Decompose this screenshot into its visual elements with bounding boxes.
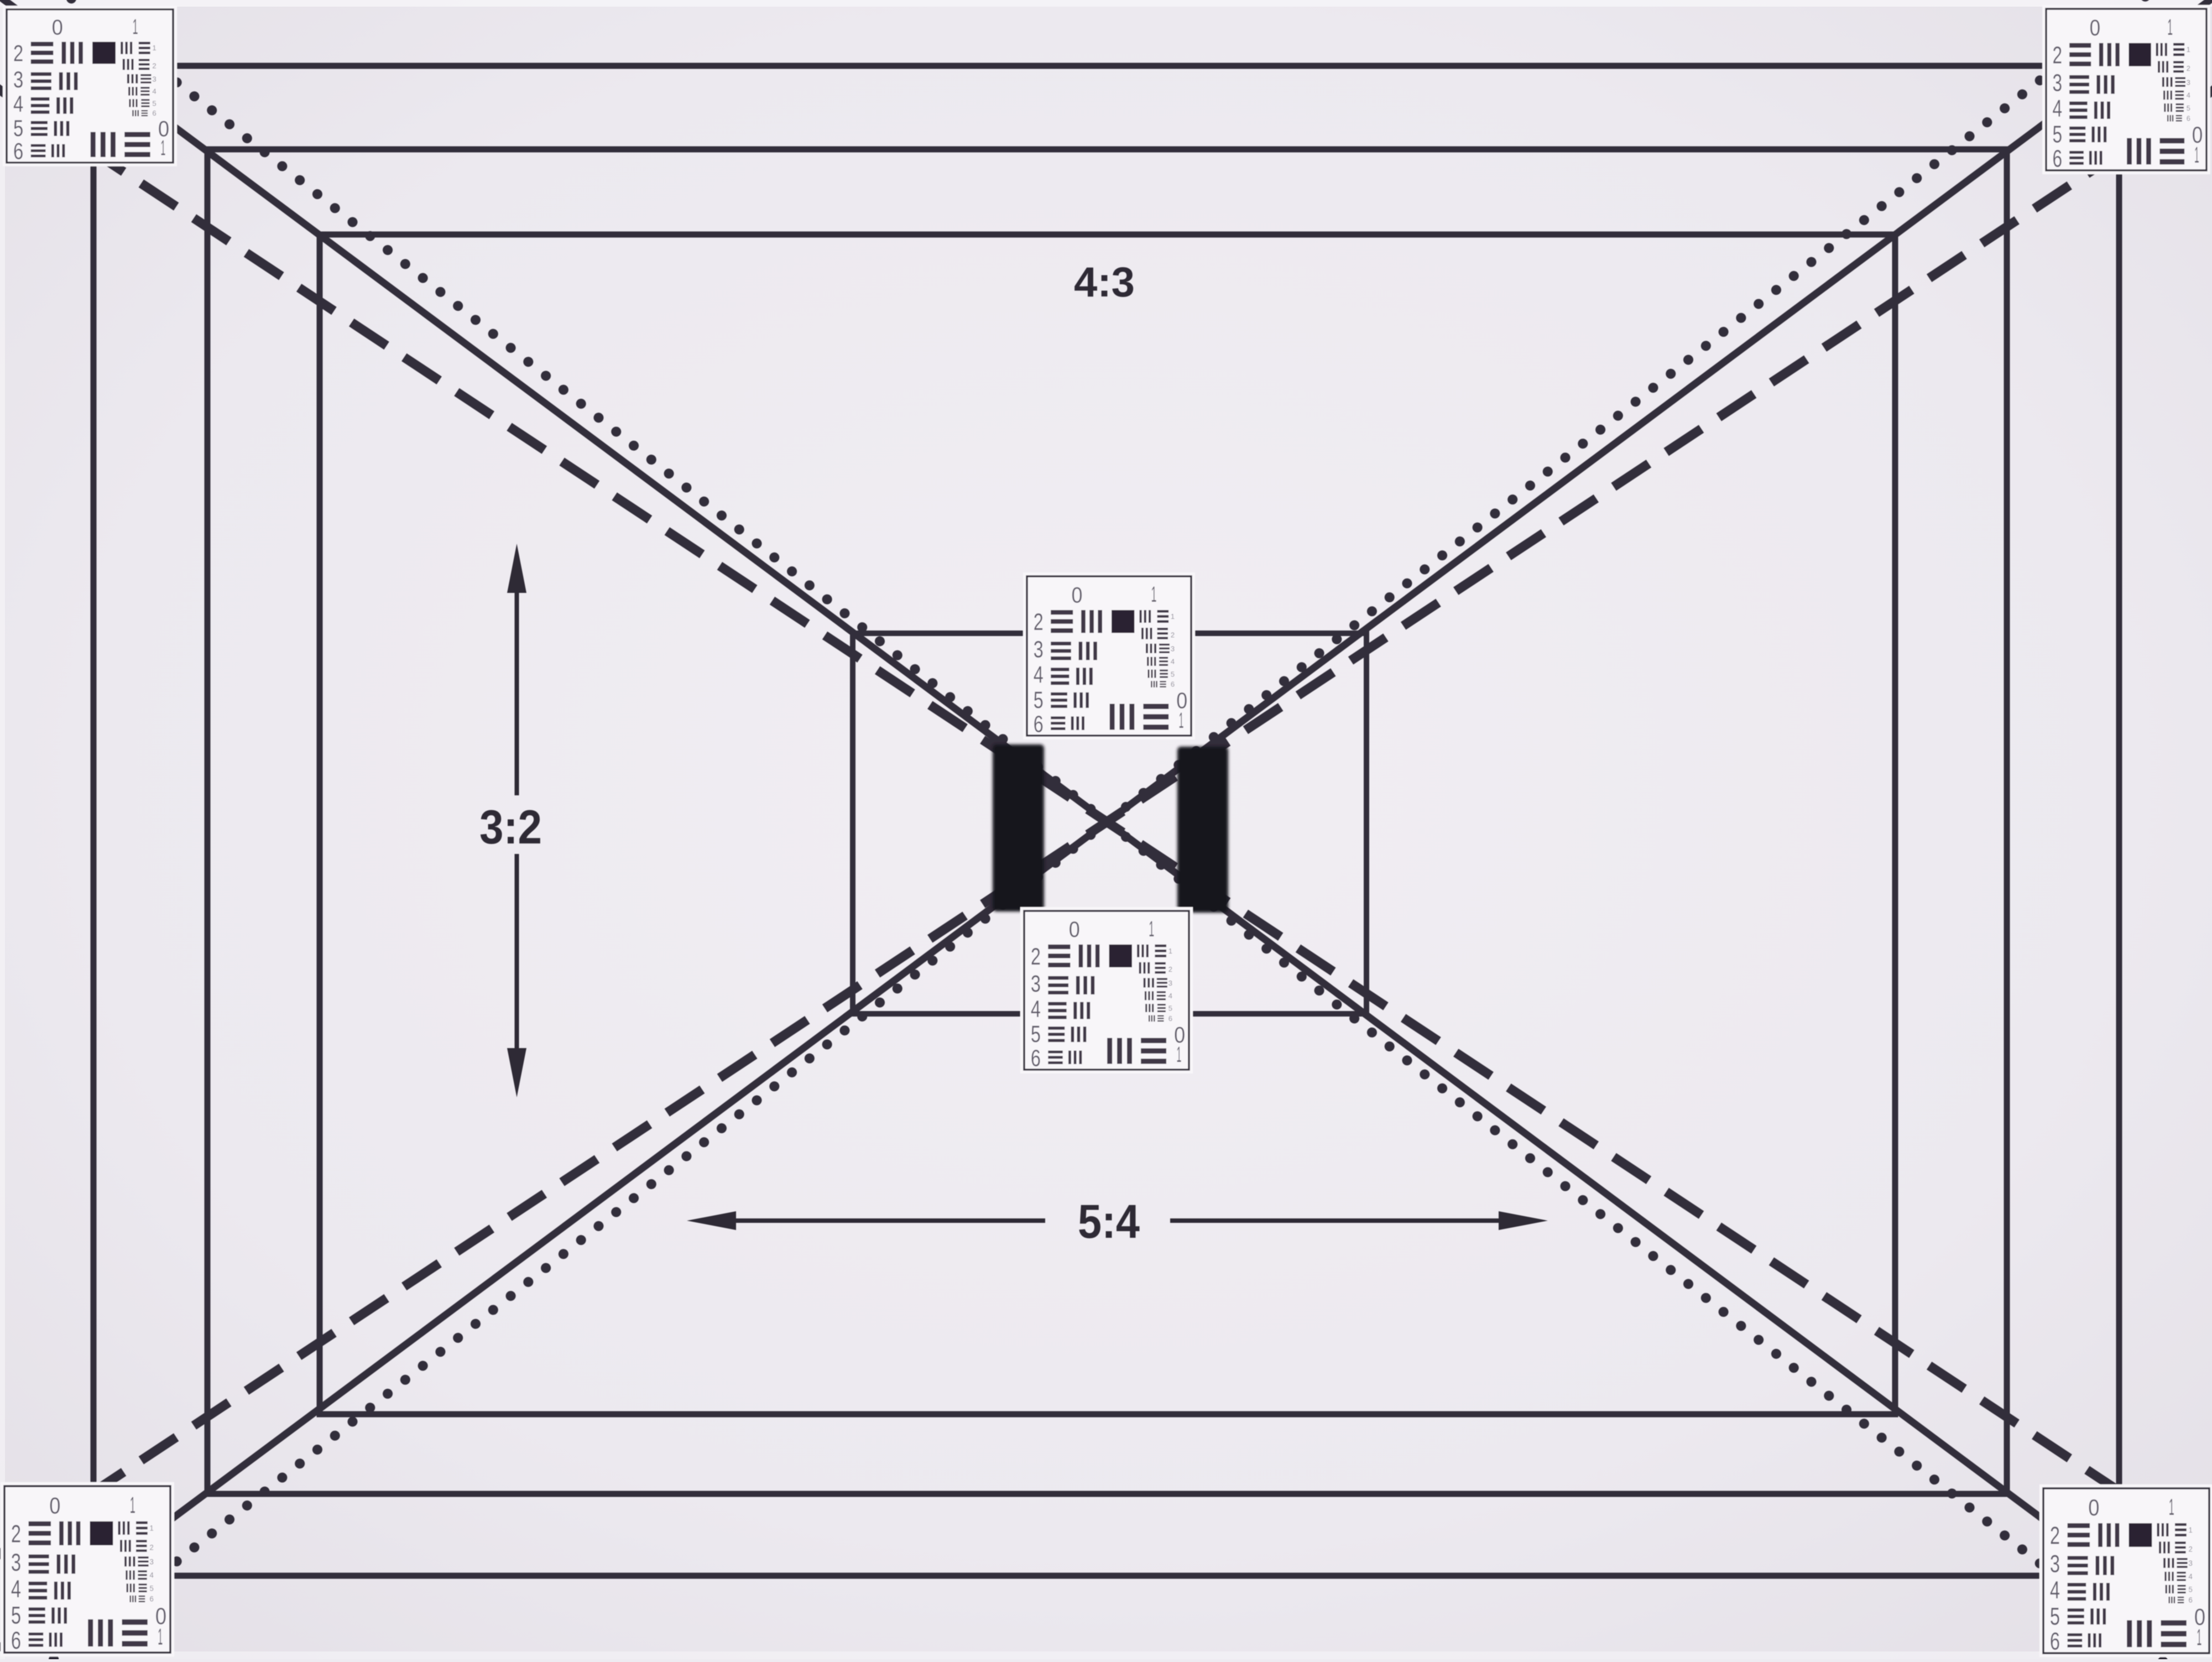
svg-text:3:2: 3:2 [479,801,542,854]
svg-text:4:3: 4:3 [1074,259,1135,306]
svg-text:5:4: 5:4 [1078,1195,1140,1248]
